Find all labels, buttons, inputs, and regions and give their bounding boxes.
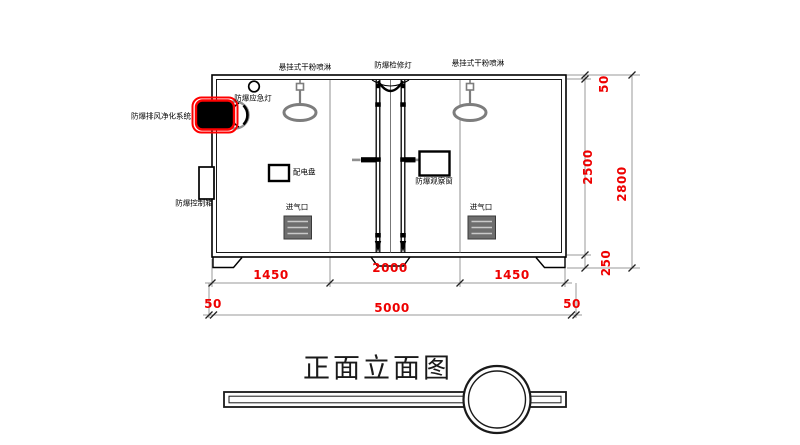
label-observation-window: 防爆观察窗: [415, 177, 453, 185]
door-handle-left: [361, 157, 377, 162]
air-inlet-right-icon: [468, 216, 496, 239]
emergency-lamp-icon: [249, 81, 260, 92]
control-box-icon: [199, 167, 214, 199]
dim-inner-height: 2500: [582, 149, 594, 184]
dim-margin-right: 50: [563, 298, 581, 310]
label-air-inlet-left: 进气口: [286, 203, 309, 211]
elevation-drawing-sheet: 悬挂式干粉喷淋 防爆检修灯 悬挂式干粉喷淋 防爆应急灯 防爆排风净化系统 防爆控…: [0, 0, 800, 445]
label-inspection-lamp: 防爆检修灯: [374, 61, 412, 69]
dim-seg-right: 1450: [494, 269, 529, 281]
section-circle-icon: [464, 366, 531, 433]
dim-top-offset: 50: [598, 75, 610, 93]
label-sprinkler-left: 悬挂式干粉喷淋: [279, 63, 332, 71]
label-sprinkler-right: 悬挂式干粉喷淋: [452, 59, 505, 67]
label-power-panel: 配电盘: [293, 168, 316, 176]
dim-seg-mid: 2000: [372, 262, 407, 274]
dim-overall-height: 2800: [616, 166, 628, 201]
drawing-title: 正面立面图: [303, 356, 453, 383]
power-panel-icon: [269, 165, 289, 181]
dim-margin-left: 50: [204, 298, 222, 310]
dim-base-height: 250: [600, 250, 612, 277]
dim-seg-left: 1450: [253, 269, 288, 281]
observation-window-icon: [420, 152, 450, 176]
label-control-box: 防爆控制箱: [175, 199, 213, 207]
cabinet-outer-wall: [212, 75, 566, 257]
exhaust-purifier-icon: [193, 98, 249, 133]
door-handle-right: [405, 157, 416, 162]
air-inlet-left-icon: [284, 216, 312, 239]
label-emergency-lamp: 防爆应急灯: [234, 94, 272, 102]
label-air-inlet-right: 进气口: [470, 203, 493, 211]
dim-overall-width: 5000: [374, 302, 409, 314]
label-exhaust-purifier: 防爆排风净化系统: [131, 112, 191, 120]
